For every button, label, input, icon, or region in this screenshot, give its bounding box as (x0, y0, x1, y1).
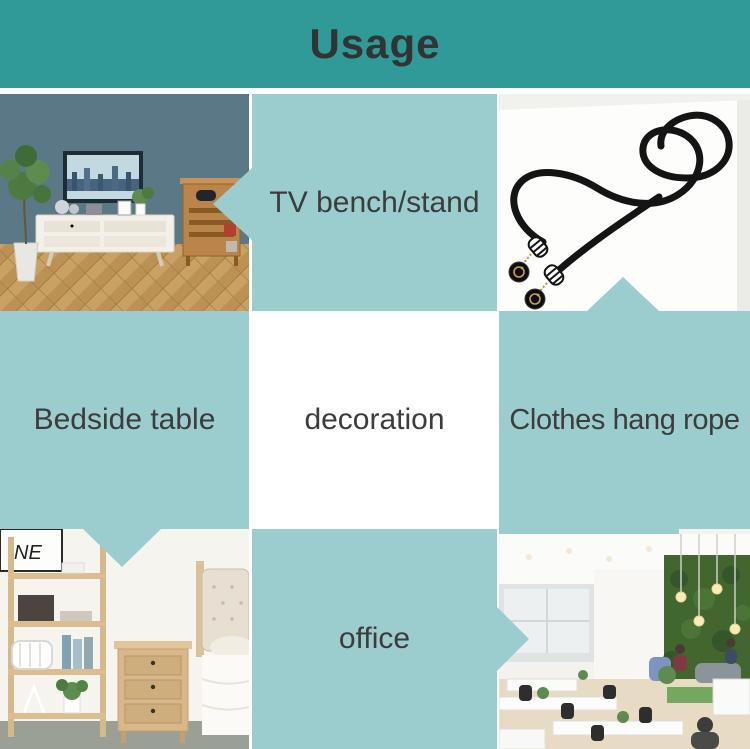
usage-infographic: Usage (0, 0, 750, 749)
chevron-right-icon (497, 607, 529, 671)
chevron-up-icon (587, 277, 659, 311)
tv-screen (63, 151, 143, 203)
bed (196, 561, 249, 735)
bedside-table-label: Bedside table (34, 403, 216, 437)
living-room-illustration (0, 94, 249, 311)
tv-bench-stand-cell: TV bench/stand (252, 94, 497, 311)
living-room-tv-stand-photo (0, 94, 249, 311)
decoration-cell: decoration (252, 311, 497, 529)
tv-bench-stand-label: TV bench/stand (269, 186, 479, 220)
photo-edge-shade (737, 94, 750, 311)
open-plan-office-photo (499, 529, 750, 749)
chevron-down-icon (83, 529, 161, 567)
decoration-label: decoration (304, 403, 444, 437)
clothes-hang-rope-label: Clothes hang rope (509, 404, 739, 437)
wall-art-text: NE (14, 542, 42, 564)
wire-basket (12, 641, 52, 669)
office-cell: office (252, 529, 497, 749)
bedside-table-cell: Bedside table (0, 311, 249, 529)
page-title: Usage (309, 20, 440, 68)
bedside-table (114, 641, 192, 743)
office-label: office (339, 622, 410, 656)
clothes-hang-rope-cell: Clothes hang rope (499, 311, 750, 529)
chevron-left-icon (213, 168, 252, 240)
office-illustration (499, 529, 750, 749)
header-banner: Usage (0, 0, 750, 88)
